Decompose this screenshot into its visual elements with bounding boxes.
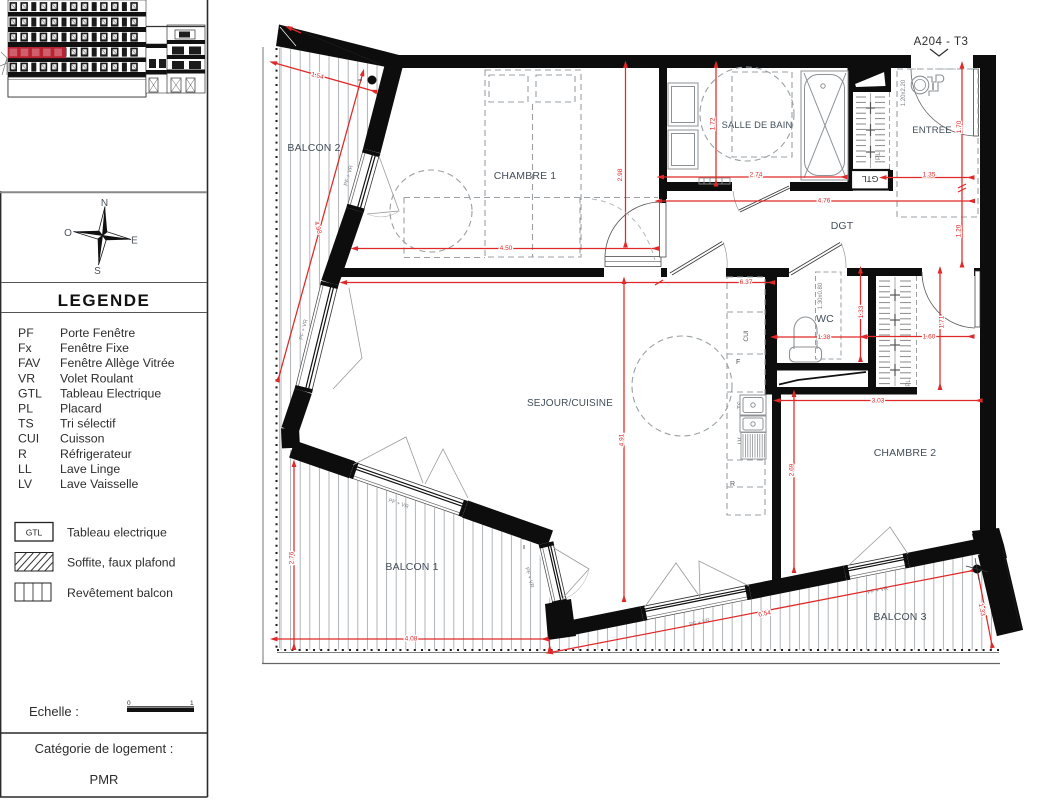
- svg-text:GTL: GTL: [18, 386, 42, 400]
- svg-text:1: 1: [190, 700, 194, 707]
- svg-text:O: O: [64, 228, 72, 239]
- svg-text:Volet Roulant: Volet Roulant: [60, 371, 134, 385]
- svg-text:CUI: CUI: [18, 432, 39, 446]
- svg-text:CHAMBRE 2: CHAMBRE 2: [874, 447, 937, 459]
- svg-text:SALLE DE BAIN: SALLE DE BAIN: [722, 120, 793, 130]
- svg-text:VR: VR: [18, 371, 35, 385]
- svg-text:4.50: 4.50: [500, 245, 513, 252]
- svg-text:3.03: 3.03: [872, 398, 885, 405]
- svg-text:PMR: PMR: [90, 772, 119, 787]
- svg-text:Tri sélectif: Tri sélectif: [60, 417, 116, 431]
- svg-text:1.33: 1.33: [858, 305, 865, 318]
- svg-text:1.72: 1.72: [710, 117, 717, 130]
- svg-text:GTL: GTL: [26, 528, 43, 538]
- svg-text:WC: WC: [816, 313, 834, 325]
- svg-text:2.74: 2.74: [750, 172, 763, 179]
- svg-text:DGT: DGT: [831, 220, 854, 232]
- svg-text:6.37: 6.37: [740, 279, 753, 286]
- svg-text:4.76: 4.76: [818, 198, 831, 205]
- svg-text:4.91: 4.91: [619, 433, 626, 446]
- svg-text:Lave Linge: Lave Linge: [60, 462, 120, 476]
- svg-text:F: F: [736, 359, 740, 366]
- svg-text:LV: LV: [18, 477, 33, 491]
- svg-text:Fenêtre Allège Vitrée: Fenêtre Allège Vitrée: [60, 356, 175, 370]
- svg-text:1.20x2.20: 1.20x2.20: [901, 79, 907, 106]
- svg-text:S: S: [94, 266, 101, 277]
- svg-text:1.38: 1.38: [818, 334, 831, 341]
- svg-text:1.20: 1.20: [956, 224, 963, 237]
- svg-text:Réfrigerateur: Réfrigerateur: [60, 447, 132, 461]
- svg-text:1.30x0.80: 1.30x0.80: [818, 282, 824, 309]
- svg-text:Soffite, faux plafond: Soffite, faux plafond: [67, 556, 176, 570]
- svg-text:Revêtement balcon: Revêtement balcon: [67, 586, 173, 600]
- svg-text:2.98: 2.98: [617, 168, 624, 181]
- svg-text:PF: PF: [18, 326, 34, 340]
- svg-text:1.70: 1.70: [956, 120, 963, 133]
- svg-text:A204 - T3: A204 - T3: [914, 36, 969, 48]
- svg-text:Tableau electrique: Tableau electrique: [67, 526, 167, 540]
- svg-text:Fenêtre Fixe: Fenêtre Fixe: [60, 341, 129, 355]
- svg-text:R: R: [18, 447, 27, 461]
- svg-text:Porte Fenêtre: Porte Fenêtre: [60, 326, 135, 340]
- svg-text:LL: LL: [18, 462, 32, 476]
- svg-text:PL: PL: [875, 152, 882, 160]
- svg-text:Placard: Placard: [60, 402, 102, 416]
- svg-text:ENTREE: ENTREE: [912, 125, 951, 136]
- svg-text:BALCON 2: BALCON 2: [287, 142, 340, 154]
- svg-text:Lave Vaisselle: Lave Vaisselle: [60, 477, 139, 491]
- svg-text:Cuisson: Cuisson: [60, 432, 105, 446]
- svg-text:LEGENDE: LEGENDE: [58, 291, 151, 310]
- svg-text:GTL: GTL: [861, 174, 878, 184]
- svg-text:TS: TS: [18, 417, 34, 431]
- svg-text:PL: PL: [18, 402, 33, 416]
- svg-text:1.71: 1.71: [939, 315, 946, 328]
- svg-text:0: 0: [127, 700, 131, 707]
- svg-text:FAV: FAV: [18, 356, 41, 370]
- svg-text:BALCON 3: BALCON 3: [873, 611, 926, 623]
- svg-text:PL: PL: [906, 379, 912, 387]
- svg-text:Catégorie de logement :: Catégorie de logement :: [35, 741, 174, 756]
- svg-text:E: E: [131, 236, 138, 247]
- svg-text:2.76: 2.76: [289, 551, 296, 564]
- svg-text:4.08: 4.08: [405, 636, 418, 643]
- svg-text:2.69: 2.69: [789, 463, 796, 476]
- svg-text:BALCON 1: BALCON 1: [385, 561, 438, 573]
- svg-text:N: N: [101, 198, 108, 209]
- svg-text:1.60: 1.60: [923, 334, 936, 341]
- svg-text:Tableau Electrique: Tableau Electrique: [60, 386, 161, 400]
- svg-text:SEJOUR/CUISINE: SEJOUR/CUISINE: [527, 398, 613, 409]
- svg-text:1.35: 1.35: [923, 172, 936, 179]
- svg-text:CHAMBRE 1: CHAMBRE 1: [494, 170, 557, 182]
- svg-text:CUI: CUI: [743, 330, 750, 341]
- svg-text:Echelle :: Echelle :: [29, 704, 79, 719]
- svg-text:Fx: Fx: [18, 341, 33, 355]
- svg-text:R: R: [730, 481, 735, 488]
